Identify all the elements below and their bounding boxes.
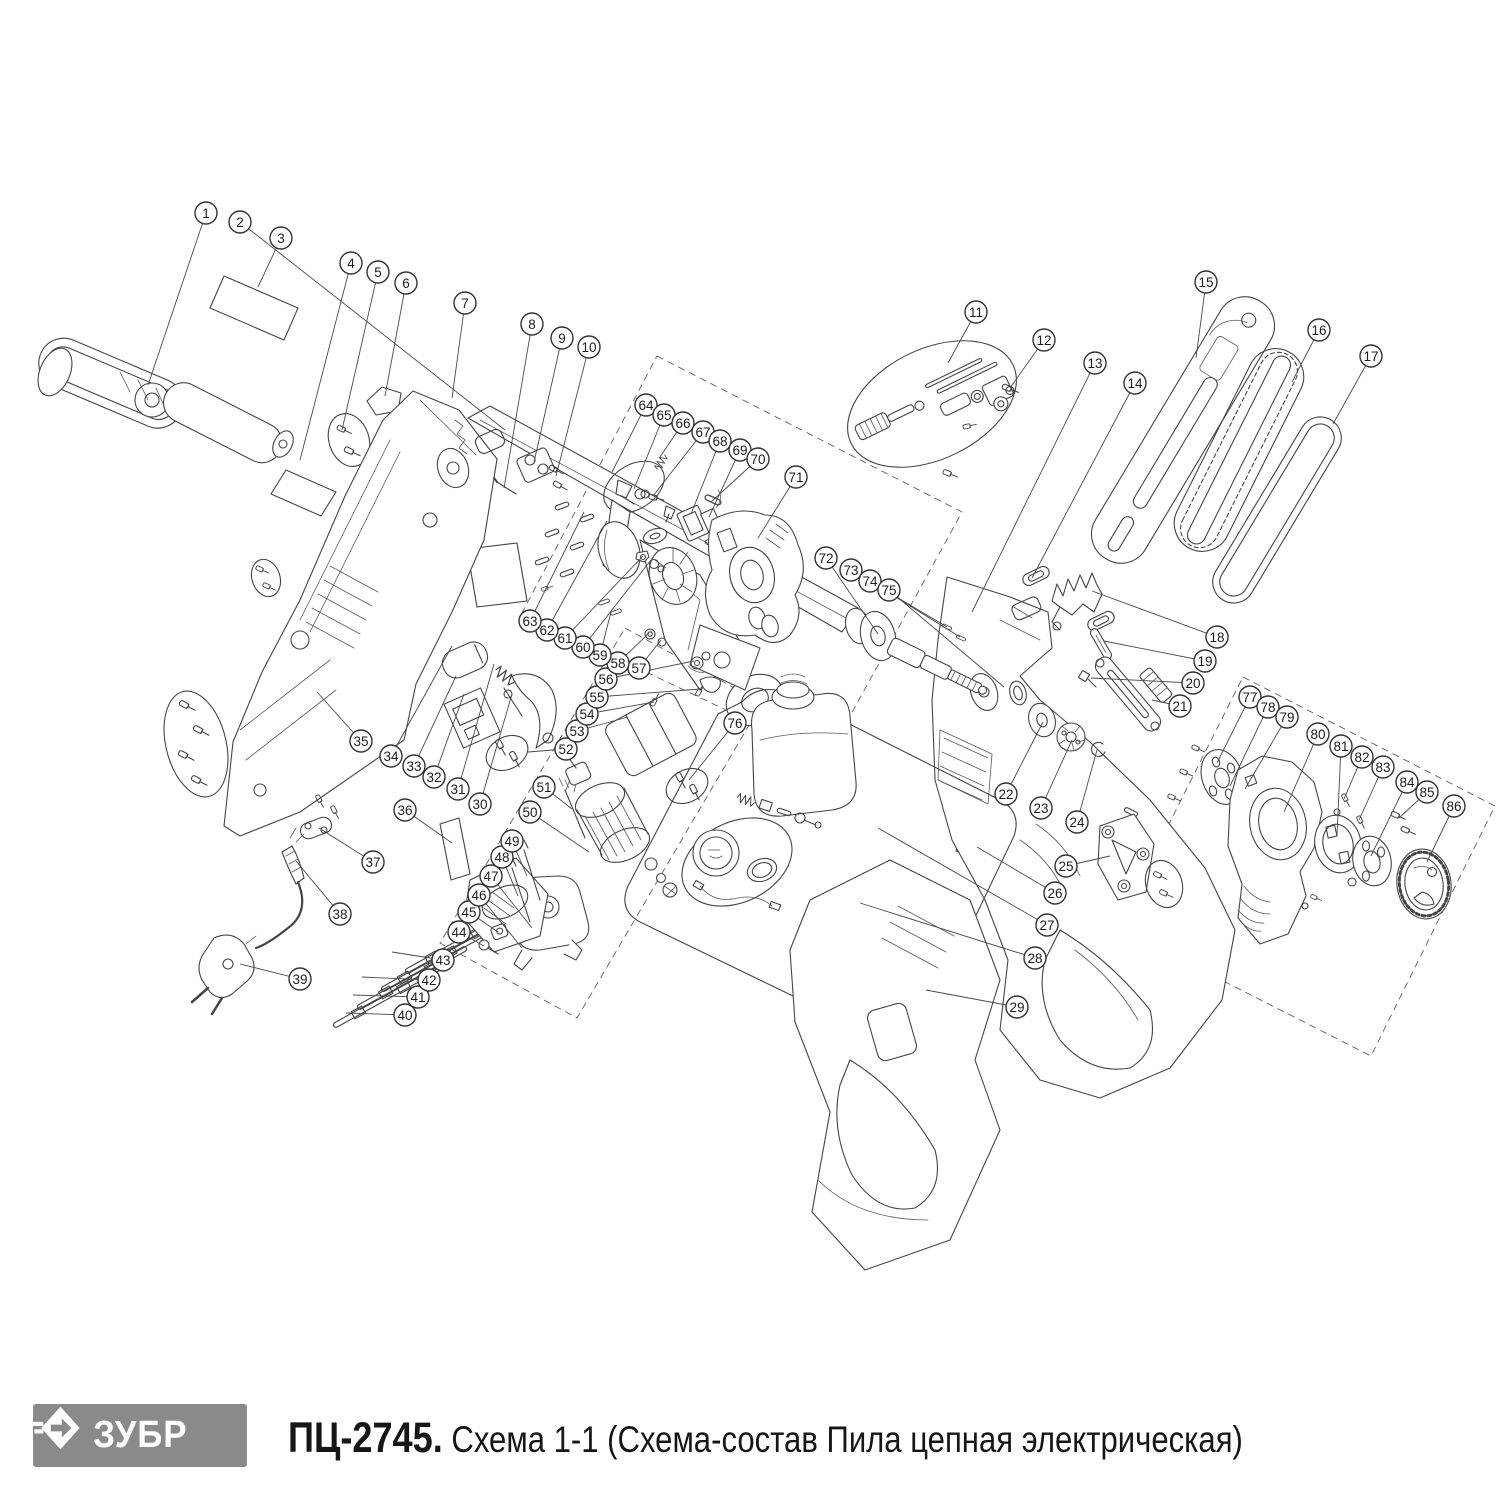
svg-text:84: 84 (1399, 775, 1415, 790)
svg-text:35: 35 (353, 734, 368, 749)
callout-36: 36 (394, 799, 452, 843)
svg-text:13: 13 (1087, 356, 1102, 371)
svg-text:42: 42 (421, 973, 436, 988)
svg-text:74: 74 (862, 574, 878, 589)
svg-text:73: 73 (843, 563, 858, 578)
label-36 (440, 818, 470, 880)
callout-3: 3 (258, 227, 292, 287)
callout-17: 17 (1333, 345, 1382, 424)
callout-57: 57 (628, 640, 661, 679)
svg-text:76: 76 (727, 716, 742, 731)
svg-text:26: 26 (1047, 886, 1062, 901)
svg-text:57: 57 (631, 661, 646, 676)
oil-pump-group (827, 315, 1037, 493)
svg-text:3: 3 (277, 231, 285, 246)
svg-text:81: 81 (1333, 739, 1348, 754)
svg-text:67: 67 (695, 425, 710, 440)
svg-text:62: 62 (539, 623, 554, 638)
svg-text:48: 48 (494, 850, 509, 865)
svg-text:27: 27 (1039, 918, 1054, 933)
callout-6: 6 (385, 272, 417, 396)
svg-text:78: 78 (1260, 700, 1275, 715)
svg-text:38: 38 (332, 907, 347, 922)
svg-text:53: 53 (569, 724, 584, 739)
callout-64: 64 (612, 394, 657, 472)
screw-group-76 (660, 762, 714, 811)
callout-37: 37 (319, 828, 384, 873)
callout-7: 7 (452, 292, 476, 398)
svg-text:66: 66 (675, 416, 690, 431)
star-gear (1057, 723, 1085, 751)
callout-38: 38 (296, 861, 351, 925)
svg-text:69: 69 (732, 443, 747, 458)
svg-text:12: 12 (1036, 333, 1051, 348)
svg-text:19: 19 (1197, 654, 1212, 669)
callout-60: 60 (572, 560, 651, 658)
svg-text:82: 82 (1354, 750, 1369, 765)
svg-text:39: 39 (292, 972, 307, 987)
svg-text:21: 21 (1172, 699, 1187, 714)
svg-text:14: 14 (1127, 376, 1143, 391)
svg-text:45: 45 (461, 905, 476, 920)
svg-text:37: 37 (365, 855, 380, 870)
svg-text:86: 86 (1446, 799, 1461, 814)
svg-text:72: 72 (818, 551, 833, 566)
callout-76: 76 (689, 712, 746, 780)
svg-text:56: 56 (598, 672, 613, 687)
callout-11: 11 (948, 301, 987, 363)
callout-40: 40 (346, 1004, 416, 1026)
svg-text:9: 9 (558, 331, 566, 346)
front-handle (31, 330, 297, 469)
svg-text:34: 34 (383, 749, 399, 764)
callout-62: 62 (536, 521, 607, 641)
svg-text:75: 75 (881, 583, 896, 598)
svg-text:47: 47 (483, 869, 498, 884)
svg-text:11: 11 (969, 305, 983, 320)
screw-group-mid (247, 556, 285, 601)
callout-59: 59 (589, 612, 611, 666)
svg-text:4: 4 (347, 256, 355, 271)
chain-capsule (1205, 409, 1349, 611)
power-plug (192, 935, 256, 1014)
svg-text:77: 77 (1242, 690, 1257, 705)
screw-group-35 (154, 684, 238, 803)
label-3 (210, 276, 298, 340)
svg-text:71: 71 (788, 470, 803, 485)
svg-text:23: 23 (1033, 801, 1048, 816)
sprocket-cover (1228, 756, 1322, 944)
svg-text:52: 52 (558, 742, 573, 757)
svg-text:51: 51 (536, 780, 551, 795)
svg-text:55: 55 (589, 690, 604, 705)
svg-text:30: 30 (472, 797, 487, 812)
svg-text:31: 31 (450, 782, 465, 797)
svg-text:22: 22 (998, 787, 1013, 802)
svg-text:18: 18 (1209, 630, 1224, 645)
svg-text:58: 58 (610, 656, 625, 671)
svg-text:10: 10 (581, 340, 596, 355)
svg-text:36: 36 (397, 803, 412, 818)
svg-text:2: 2 (236, 215, 244, 230)
guide-bar (1081, 286, 1285, 573)
logo-text: ЗУБР (93, 1414, 187, 1457)
svg-text:68: 68 (712, 434, 727, 449)
switch-cluster (438, 638, 556, 748)
svg-text:33: 33 (406, 759, 421, 774)
svg-text:46: 46 (471, 888, 486, 903)
callout-12: 12 (1010, 329, 1055, 388)
svg-text:1: 1 (202, 206, 210, 221)
svg-text:54: 54 (579, 707, 595, 722)
svg-text:25: 25 (1058, 859, 1073, 874)
svg-text:49: 49 (504, 834, 519, 849)
svg-text:20: 20 (1185, 676, 1200, 691)
schema-caption: Схема 1-1 (Схема-состав Пила цепная элек… (443, 1419, 1243, 1460)
cap-and-wire-group (667, 801, 806, 924)
callout-52: 52 (528, 738, 577, 760)
callout-4: 4 (300, 252, 362, 460)
schematic-page: 1234567891011121314151617181920212223242… (0, 0, 1500, 1500)
svg-text:70: 70 (750, 452, 765, 467)
svg-text:8: 8 (528, 317, 536, 332)
svg-text:65: 65 (656, 408, 671, 423)
svg-text:50: 50 (522, 805, 537, 820)
svg-text:80: 80 (1310, 727, 1325, 742)
svg-text:41: 41 (410, 990, 425, 1005)
tensioner-knob (1392, 846, 1455, 923)
svg-text:29: 29 (1009, 1000, 1024, 1015)
cord-grommet (256, 828, 304, 948)
page-title: ПЦ-2745. Схема 1-1 (Схема-состав Пила це… (288, 1414, 1243, 1463)
svg-text:6: 6 (402, 276, 410, 291)
svg-text:85: 85 (1419, 785, 1434, 800)
callout-1: 1 (148, 202, 217, 385)
svg-text:24: 24 (1069, 815, 1085, 830)
svg-text:44: 44 (451, 925, 467, 940)
svg-text:40: 40 (397, 1008, 412, 1023)
svg-text:32: 32 (426, 770, 441, 785)
svg-text:28: 28 (1027, 951, 1042, 966)
svg-text:61: 61 (557, 631, 572, 646)
svg-text:17: 17 (1363, 349, 1378, 364)
svg-text:63: 63 (522, 614, 537, 629)
rear-housing-left (790, 860, 1000, 1270)
exploded-parts-diagram: 1234567891011121314151617181920212223242… (0, 0, 1500, 1500)
svg-text:7: 7 (461, 296, 469, 311)
label-3b (271, 470, 336, 516)
svg-text:16: 16 (1311, 323, 1326, 338)
zubr-logo: ЗУБР (33, 1404, 247, 1467)
callout-19: 19 (1104, 641, 1216, 672)
zubr-logo-icon (33, 1404, 81, 1452)
svg-text:64: 64 (638, 398, 654, 413)
svg-text:83: 83 (1375, 760, 1390, 775)
svg-text:15: 15 (1198, 275, 1213, 290)
svg-text:60: 60 (575, 640, 590, 655)
svg-text:59: 59 (592, 648, 607, 663)
svg-text:79: 79 (1279, 710, 1294, 725)
svg-text:43: 43 (435, 953, 450, 968)
svg-text:5: 5 (374, 265, 382, 280)
model-number: ПЦ-2745. (288, 1414, 443, 1462)
callout-42: 42 (362, 969, 440, 991)
